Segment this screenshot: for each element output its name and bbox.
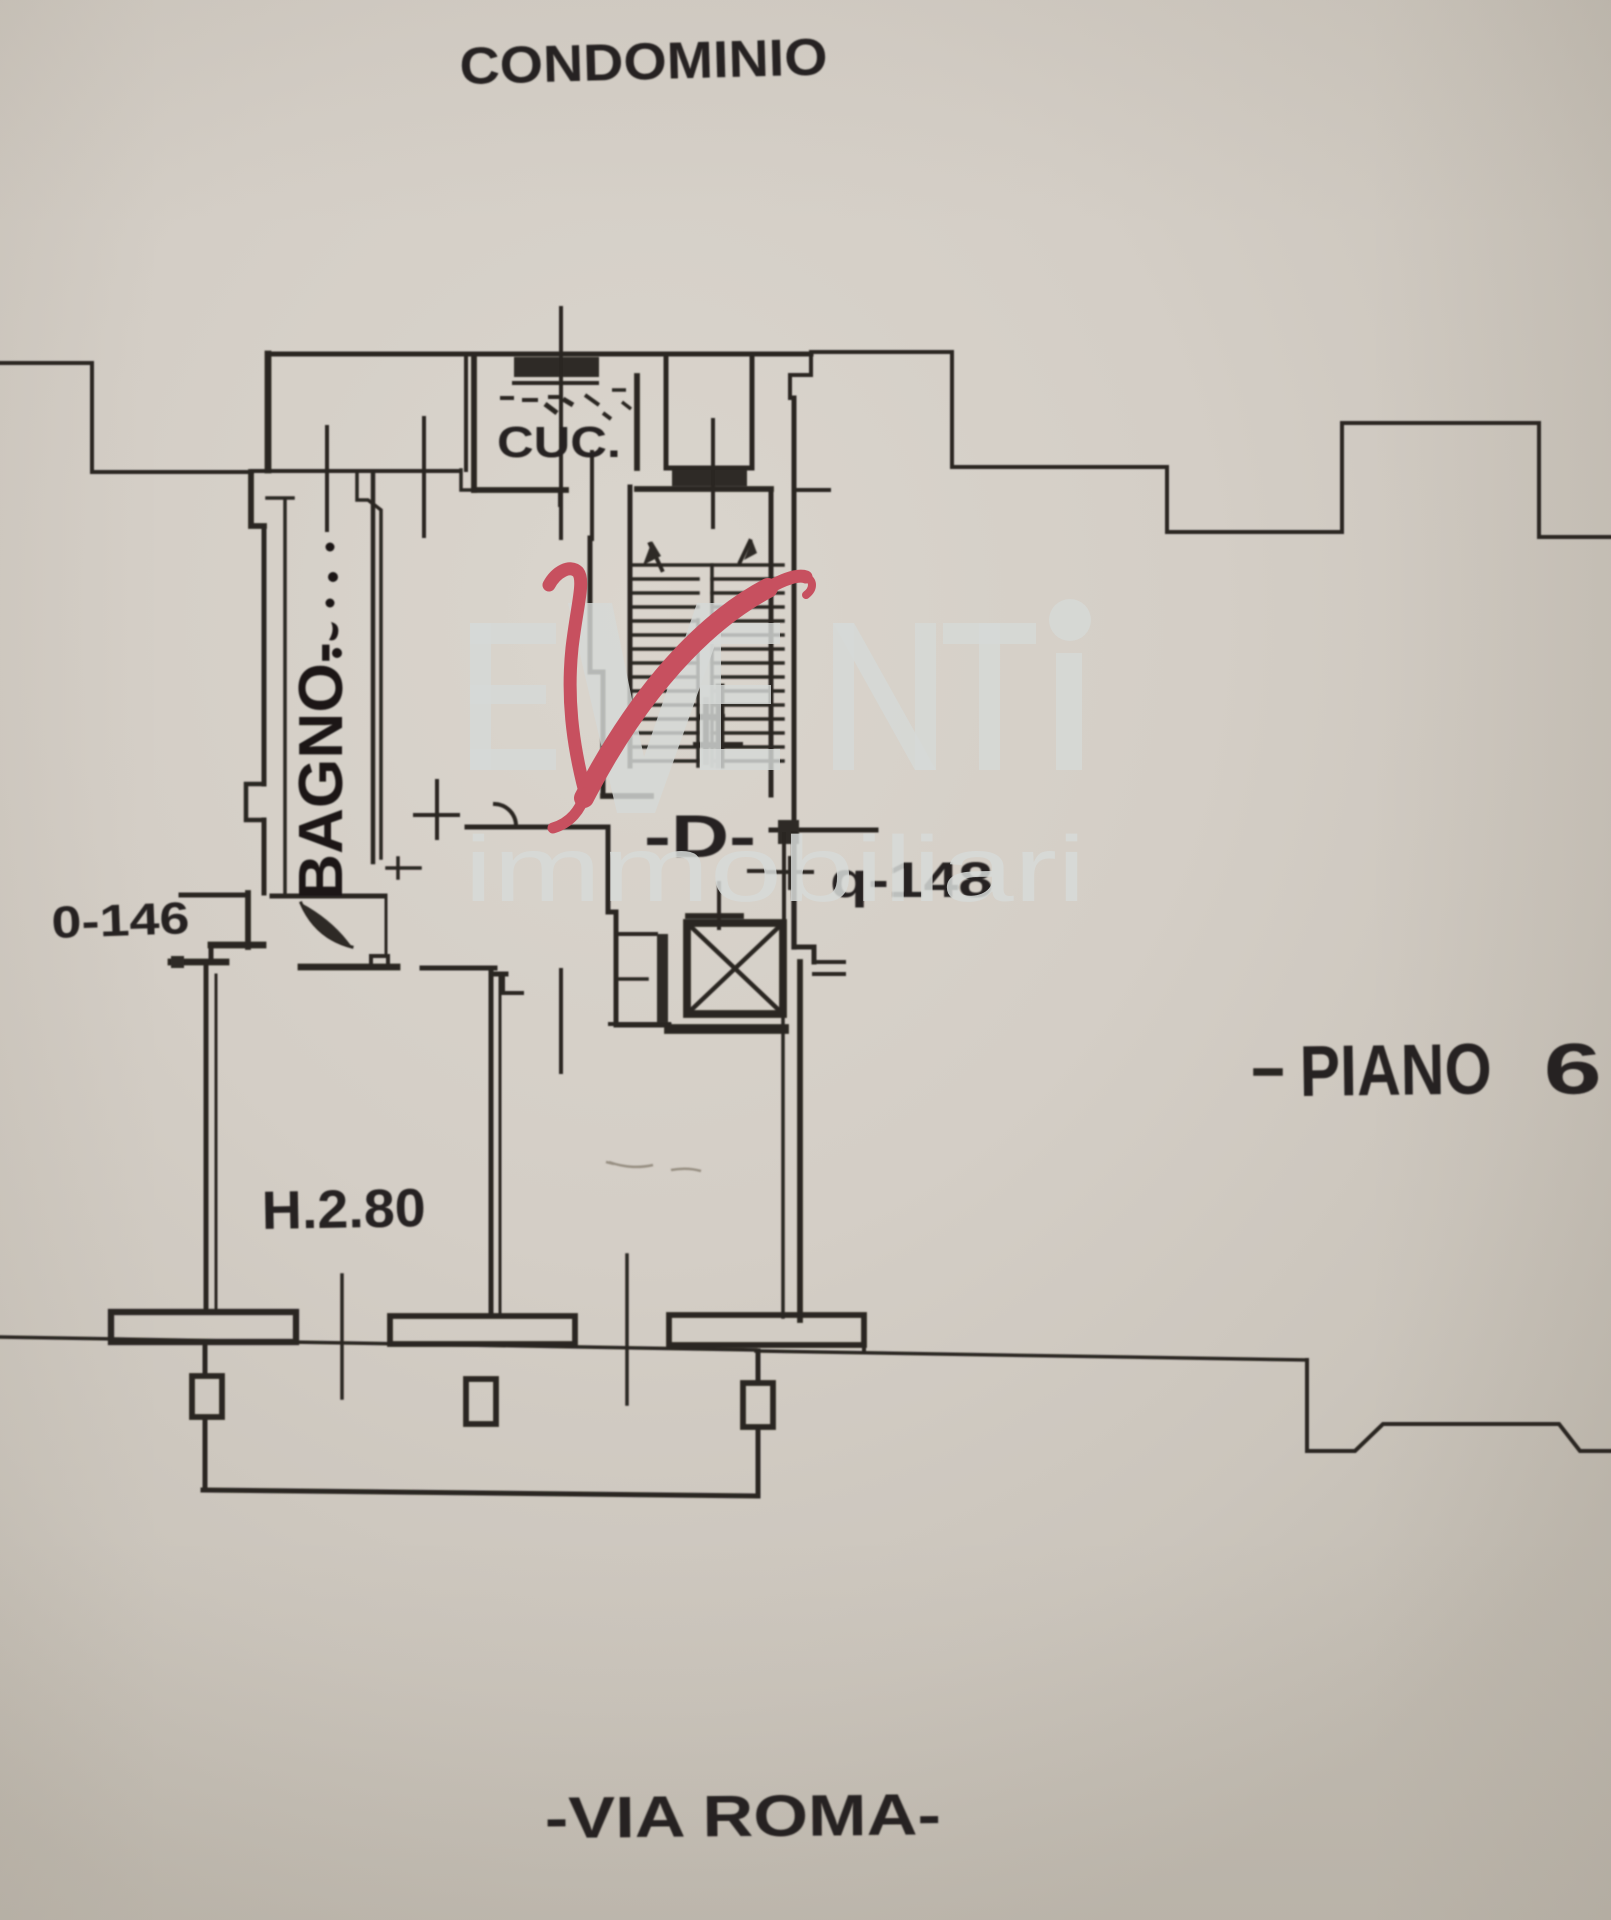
svg-text:PIANO: PIANO xyxy=(1299,1029,1492,1112)
svg-text:-VIA ROMA-: -VIA ROMA- xyxy=(545,1783,942,1851)
svg-text:0-146: 0-146 xyxy=(51,892,191,948)
svg-text:CONDOMINIO: CONDOMINIO xyxy=(459,28,828,96)
svg-text:H.2.80: H.2.80 xyxy=(261,1178,426,1241)
svg-text:BAGNO-: BAGNO- xyxy=(287,642,356,900)
svg-text:immobiliari: immobiliari xyxy=(464,817,1086,921)
svg-text:CUC.: CUC. xyxy=(497,418,621,467)
svg-text:6: 6 xyxy=(1543,1029,1602,1110)
